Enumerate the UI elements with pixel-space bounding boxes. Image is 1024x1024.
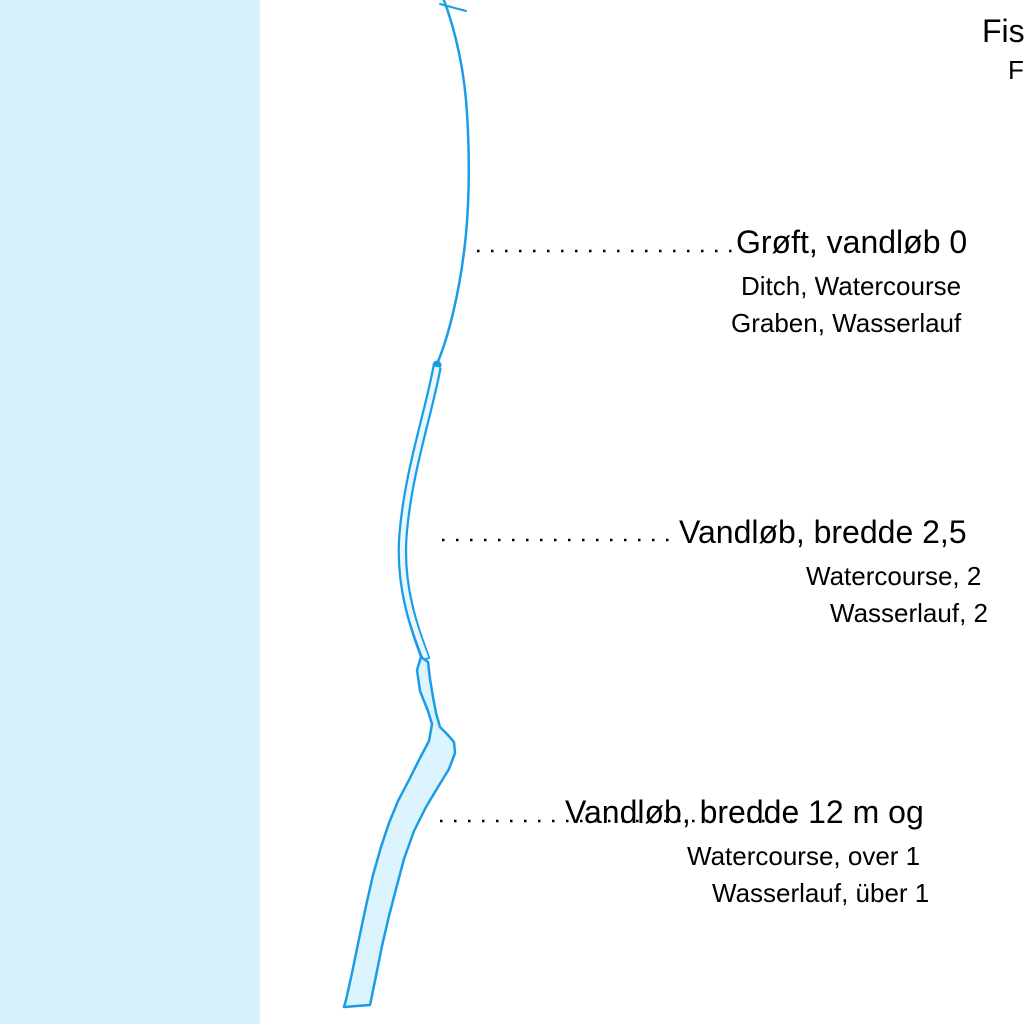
legend-canvas: Fis F Grøft, vandløb 0 Ditch, Watercours… <box>0 0 1024 1024</box>
legend-partial-label-da: Fis <box>982 13 1024 49</box>
legend-wide-watercourse-label-de: Wasserlauf, über 1 <box>712 878 929 908</box>
legend-ditch-label-de: Graben, Wasserlauf <box>731 308 962 338</box>
legend-partial-label-en: F <box>1008 55 1024 85</box>
water-area-panel <box>0 0 260 1024</box>
legend-wide-watercourse-label-da: Vandløb, bredde 12 m og <box>565 794 924 830</box>
legend-medium-watercourse-label-da: Vandløb, bredde 2,5 <box>679 514 967 550</box>
legend-ditch-label-en: Ditch, Watercourse <box>741 271 961 301</box>
wide-watercourse-area <box>344 657 455 1007</box>
legend-wide-watercourse-label-en: Watercourse, over 1 <box>687 841 920 871</box>
ditch-watercourse-line <box>437 0 469 364</box>
ditch-branch-line <box>440 4 466 11</box>
legend-page: Fis F Grøft, vandløb 0 Ditch, Watercours… <box>0 0 1024 1024</box>
legend-medium-watercourse-label-de: Wasserlauf, 2 <box>830 598 988 628</box>
legend-ditch-label-da: Grøft, vandløb 0 <box>736 224 967 260</box>
legend-medium-watercourse-label-en: Watercourse, 2 <box>806 561 981 591</box>
